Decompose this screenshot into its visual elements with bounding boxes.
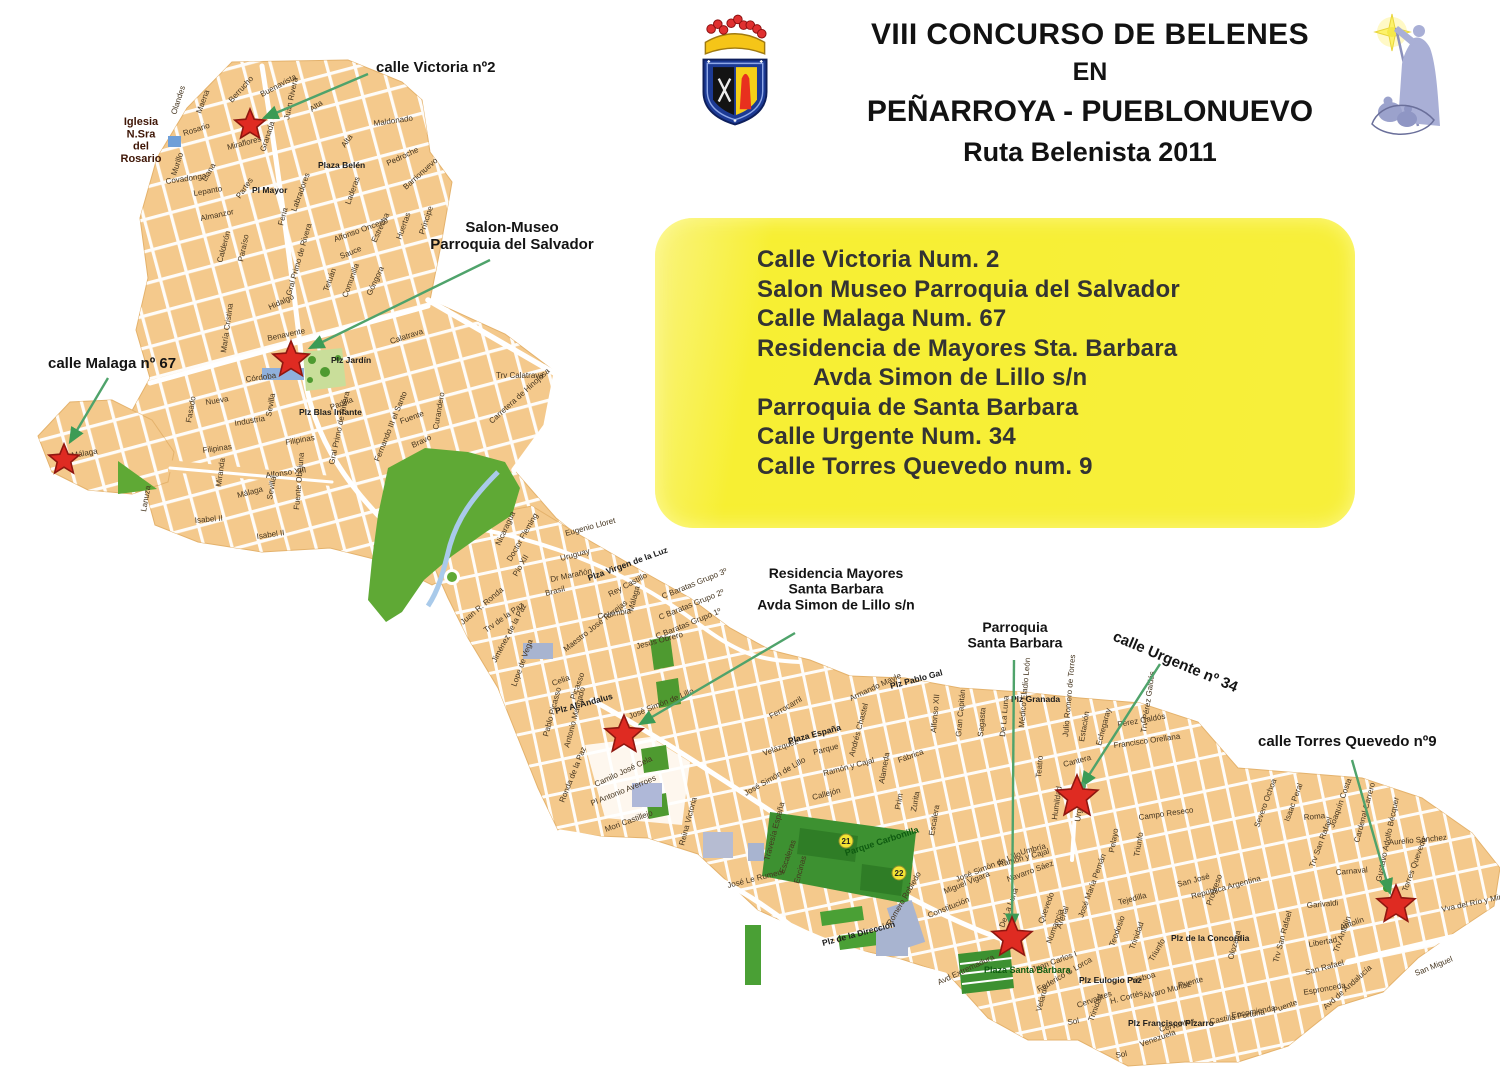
nativity-angel-with-star-icon <box>1352 4 1472 144</box>
poster-title: VIII CONCURSO DE BELENES EN PEÑARROYA - … <box>845 16 1335 173</box>
street-label: Plaza Santa Bárbara <box>984 965 1072 975</box>
route-item: Calle Urgente Num. 34 <box>757 422 1355 452</box>
route-item: Salon Museo Parroquia del Salvador <box>757 275 1355 305</box>
street-label: Plz Eulogio Paz <box>1079 975 1142 985</box>
label-salon-museo: Salon-MuseoParroquia del Salvador <box>430 219 594 253</box>
street-label: San Miguel <box>1413 954 1454 977</box>
title-line-2: EN <box>845 54 1335 91</box>
route-item: Residencia de Mayores Sta. Barbara <box>757 334 1355 364</box>
title-line-3: PEÑARROYA - PUEBLONUEVO <box>845 91 1335 132</box>
route-item: Calle Victoria Num. 2 <box>757 245 1355 275</box>
route-item: Avda Simon de Lillo s/n <box>757 363 1355 393</box>
label-calle-urgente: calle Urgente nº 34 <box>1110 628 1240 696</box>
label-calle-malaga: calle Malaga nº 67 <box>48 355 176 372</box>
label-iglesia-rosario: IglesiaN.SradelRosario <box>121 116 162 165</box>
svg-text:22: 22 <box>895 869 904 878</box>
street-label: Eugenio Lloret <box>564 516 617 538</box>
street-label: Roma <box>1303 811 1326 822</box>
label-parroquia-santa-barbara: ParroquiaSanta Barbara <box>968 619 1063 651</box>
street-label: Plaza Belén <box>318 160 365 170</box>
title-line-4: Ruta Belenista 2011 <box>845 132 1335 173</box>
route-item: Parroquia de Santa Barbara <box>757 393 1355 423</box>
label-residencia-mayores: Residencia MayoresSanta BarbaraAvda Simo… <box>757 565 914 612</box>
route-list-box: Calle Victoria Num. 2Salon Museo Parroqu… <box>655 218 1355 528</box>
route-item: Calle Malaga Num. 67 <box>757 304 1355 334</box>
street-label: Olandes <box>169 84 187 115</box>
street-label: Plz Jardín <box>331 355 371 365</box>
title-line-1: VIII CONCURSO DE BELENES <box>845 16 1335 54</box>
route-item: Calle Torres Quevedo num. 9 <box>757 452 1355 482</box>
label-calle-torres-quevedo: calle Torres Quevedo nº9 <box>1258 733 1437 750</box>
map-landmass <box>38 60 1500 1066</box>
label-calle-victoria: calle Victoria nº2 <box>376 59 495 76</box>
street-label: Pl Mayor <box>252 185 288 195</box>
town-coat-of-arms-icon <box>692 10 778 132</box>
svg-text:21: 21 <box>842 837 851 846</box>
route-list: Calle Victoria Num. 2Salon Museo Parroqu… <box>757 245 1355 481</box>
street-label: Plz Granada <box>1011 694 1060 704</box>
